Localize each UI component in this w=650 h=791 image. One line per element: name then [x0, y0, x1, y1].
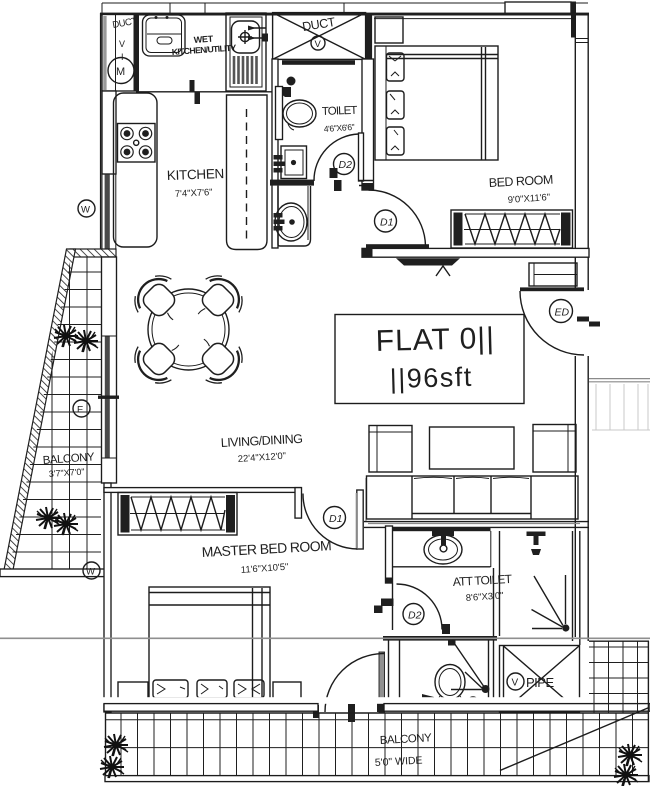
- svg-text:3'7"X7'0": 3'7"X7'0": [48, 467, 84, 479]
- svg-text:LIVING/DINING: LIVING/DINING: [220, 432, 302, 450]
- svg-text:DUCT: DUCT: [301, 15, 336, 34]
- svg-text:ATT TOILET: ATT TOILET: [452, 572, 513, 589]
- svg-text:W: W: [81, 205, 90, 216]
- svg-text:7'4"X7'6": 7'4"X7'6": [175, 187, 213, 200]
- svg-text:E: E: [77, 405, 83, 416]
- svg-text:D1: D1: [329, 513, 342, 525]
- svg-text:4'6"X6'6": 4'6"X6'6": [323, 122, 355, 134]
- svg-text:ED: ED: [555, 307, 570, 319]
- svg-text:W: W: [86, 567, 95, 578]
- svg-text:D2: D2: [408, 610, 422, 622]
- svg-text:BALCONY: BALCONY: [380, 732, 433, 747]
- svg-text:D2: D2: [339, 159, 353, 171]
- svg-text:M: M: [116, 66, 125, 78]
- svg-text:PIPE: PIPE: [526, 675, 554, 690]
- svg-text:TOILET: TOILET: [322, 105, 358, 118]
- svg-text:11'6"X10'5": 11'6"X10'5": [240, 562, 288, 576]
- svg-text:8'6"X3'0": 8'6"X3'0": [465, 590, 504, 604]
- svg-text:BED ROOM: BED ROOM: [488, 173, 553, 190]
- svg-text:22'4"X12'0": 22'4"X12'0": [237, 451, 286, 465]
- svg-text:KITCHEN: KITCHEN: [167, 166, 225, 183]
- svg-text:V: V: [315, 39, 322, 50]
- svg-text:9'0"X11'6": 9'0"X11'6": [507, 192, 550, 206]
- svg-text:V: V: [512, 678, 519, 689]
- svg-text:FLAT 0||: FLAT 0||: [375, 322, 495, 358]
- svg-text:D1: D1: [380, 217, 393, 229]
- svg-text:5'0" WIDE: 5'0" WIDE: [375, 755, 423, 769]
- svg-text:V: V: [119, 39, 125, 49]
- svg-text:MASTER BED ROOM: MASTER BED ROOM: [201, 537, 331, 560]
- svg-text:||96sft: ||96sft: [389, 362, 473, 394]
